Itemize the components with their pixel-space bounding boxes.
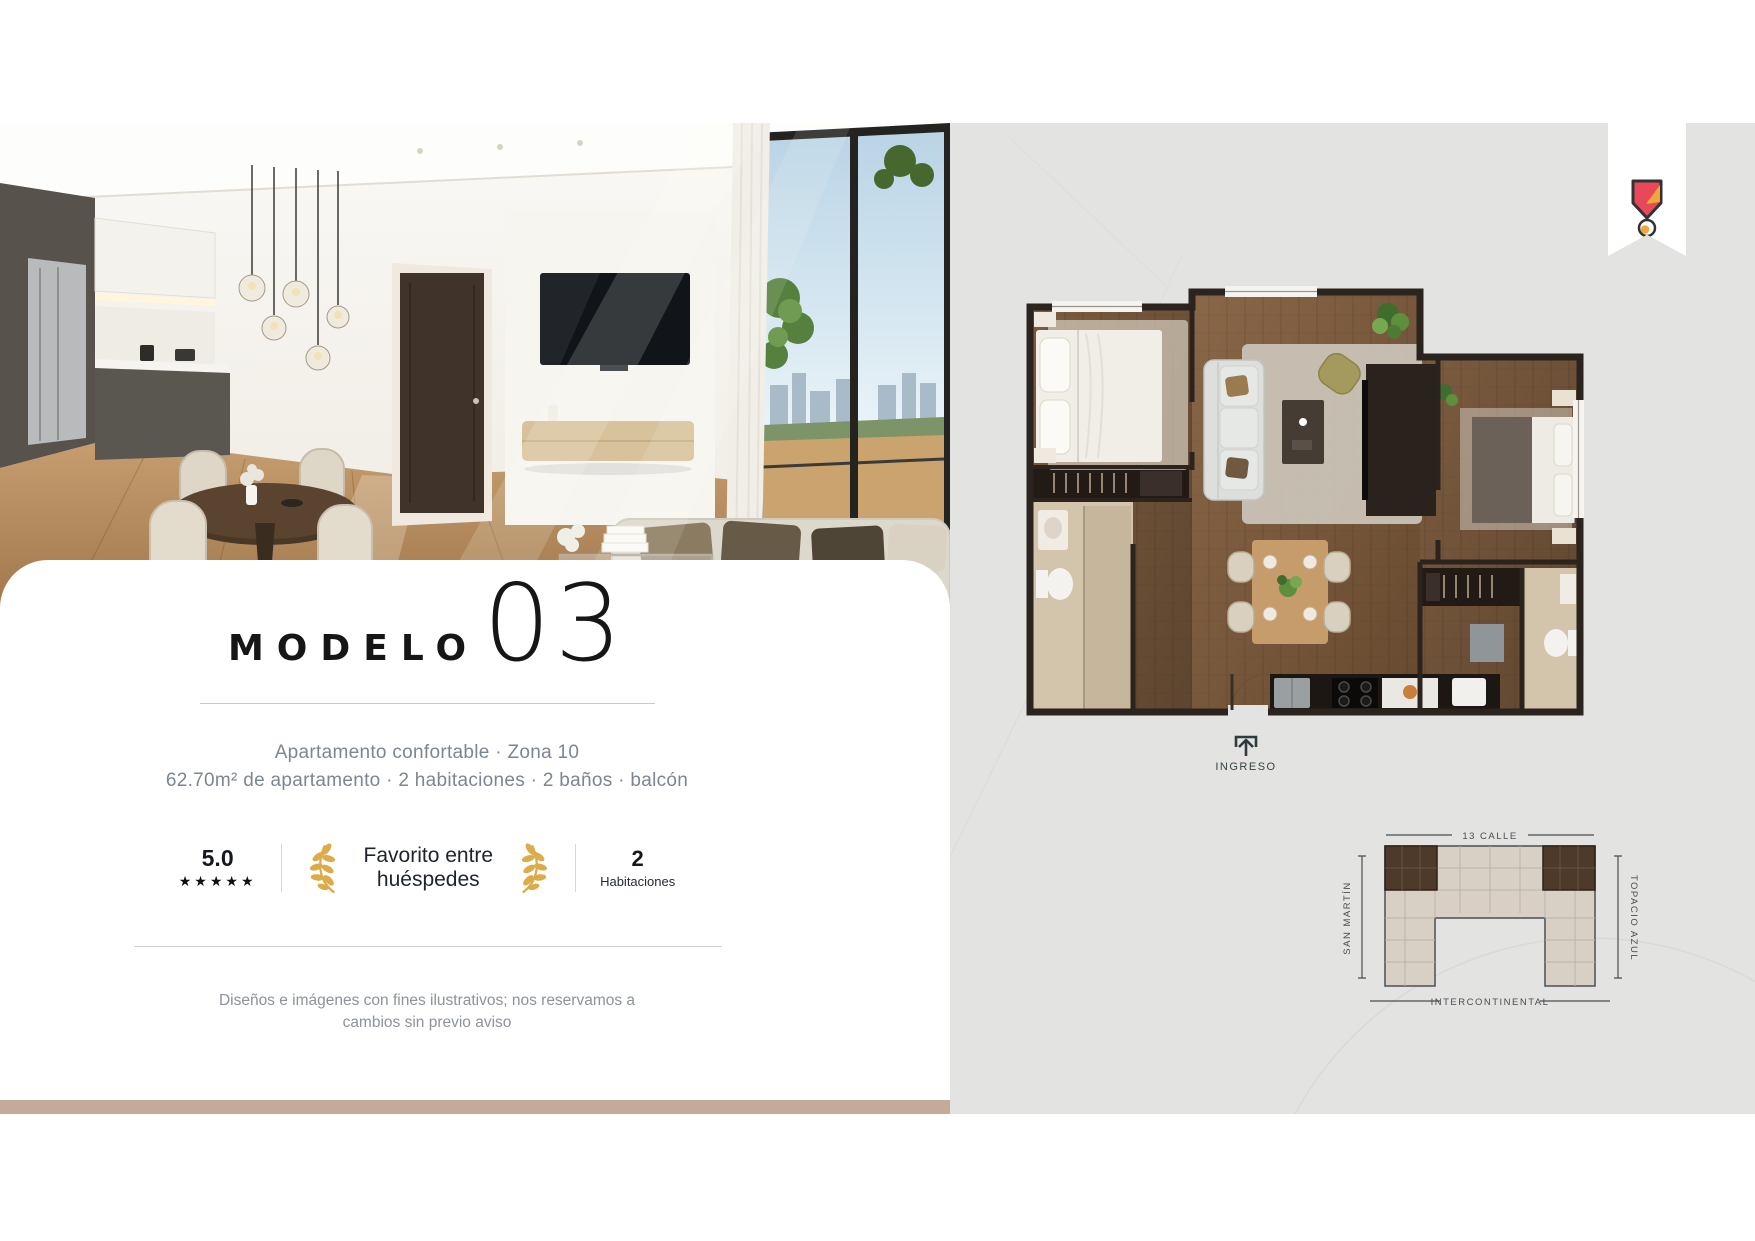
laurel-left-icon <box>306 841 340 895</box>
rating-divider <box>575 844 576 892</box>
model-title-number: 03 <box>483 571 626 677</box>
title-divider-line <box>200 703 655 704</box>
bedrooms-block: 2 Habitaciones <box>600 847 675 888</box>
rating-score: 5.0 <box>179 846 257 870</box>
subtitle-line2: 62.70m² de apartamento · 2 habitaciones … <box>0 770 854 792</box>
model-title: MODELO 03 <box>0 571 854 677</box>
rating-score-block: 5.0 ★★★★★ <box>179 846 257 889</box>
apartment-interior-photo <box>0 123 950 623</box>
model-title-word: MODELO <box>228 631 479 667</box>
disclaimer-divider-line <box>134 946 722 947</box>
brochure-page: MODELO 03 Apartamento confortable · Zona… <box>0 0 1755 1241</box>
favorite-line1: Favorito entre <box>364 844 494 868</box>
disclaimer-text: Diseños e imágenes con fines ilustrativo… <box>0 990 854 1034</box>
street-label-top: 13 CALLE <box>1462 831 1517 842</box>
bottom-accent-band <box>0 1100 950 1114</box>
street-label-left: SAN MARTÍN <box>1342 881 1353 954</box>
laurel-right-icon <box>517 841 551 895</box>
entrance-label: INGRESO <box>1206 761 1286 773</box>
rating-row: 5.0 ★★★★★ Favorito entre hué <box>0 834 854 902</box>
favorite-text-block: Favorito entre huéspedes <box>364 844 494 891</box>
street-label-right: TOPACIO AZUL <box>1628 875 1639 961</box>
site-plan: 13 CALLE INTERCONTINENTAL SAN MARTÍN TOP… <box>1340 818 1640 1018</box>
favorite-line2: huéspedes <box>364 868 494 892</box>
medal-logo-icon <box>1629 178 1665 238</box>
unit-floor-plan <box>1020 252 1590 732</box>
bedrooms-label: Habitaciones <box>600 874 675 889</box>
street-label-bottom: INTERCONTINENTAL <box>1431 997 1550 1008</box>
entry-arrow-icon <box>1233 734 1259 758</box>
subtitle-line1: Apartamento confortable · Zona 10 <box>0 742 854 764</box>
rating-divider <box>281 844 282 892</box>
disclaimer-line2: cambios sin previo aviso <box>0 1012 854 1034</box>
bedrooms-value: 2 <box>600 847 675 870</box>
interior-illustration <box>0 123 950 623</box>
disclaimer-line1: Diseños e imágenes con fines ilustrativo… <box>0 990 854 1012</box>
entrance-marker: INGRESO <box>1206 734 1286 773</box>
star-rating-icon: ★★★★★ <box>179 873 257 890</box>
